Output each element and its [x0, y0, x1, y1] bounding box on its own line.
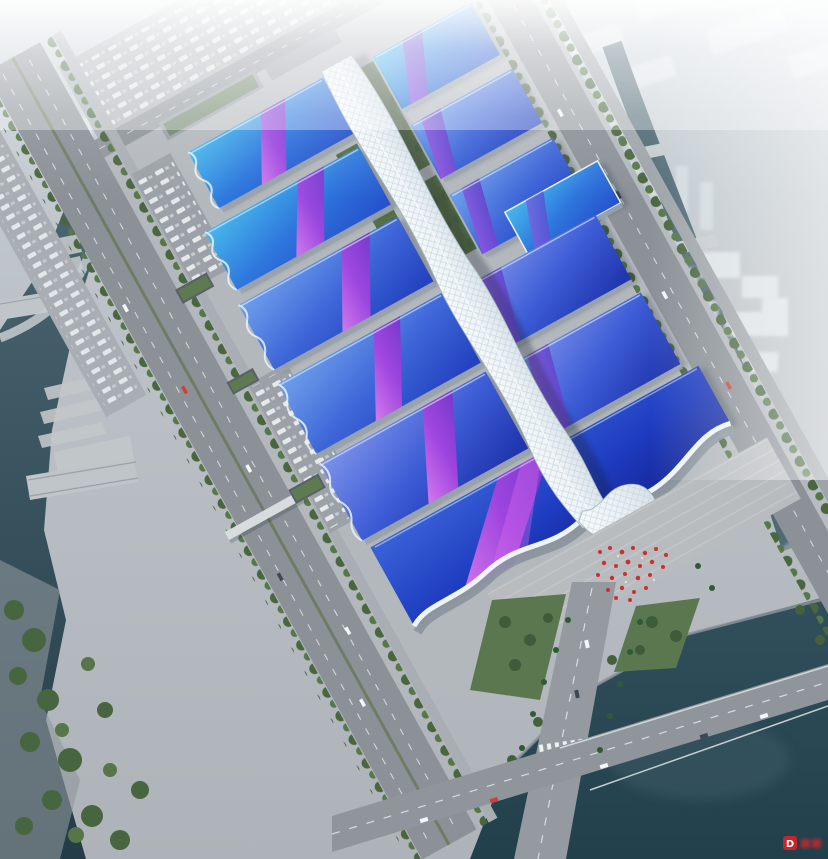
atmospheric-haze-east: [650, 0, 828, 480]
rendering-canvas: D: [0, 0, 828, 859]
watermark-logo-letter: D: [786, 839, 794, 850]
aerial-rendering: D: [0, 0, 828, 859]
